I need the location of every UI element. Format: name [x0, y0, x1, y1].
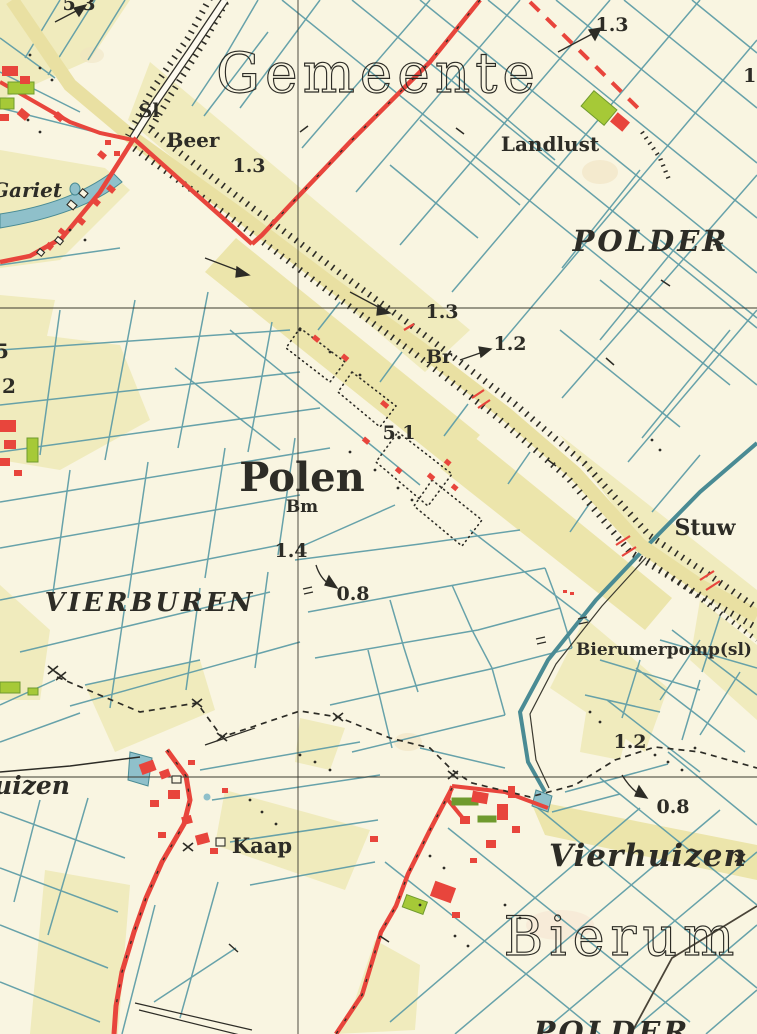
feature-weir-stuw: Stuw: [675, 515, 737, 541]
spot-height: 1.3: [425, 301, 458, 323]
feature-bierumerpomp: Bierumerpomp(sl): [576, 640, 752, 660]
feature-bridge-br: Br: [426, 346, 453, 368]
map-canvas: Gemeente Bierum POLDER POLDER VIERBUREN …: [0, 0, 757, 1034]
spot-height: 1.3: [232, 155, 265, 177]
area-label-vierburen: VIERBUREN: [45, 588, 256, 618]
settlement-kaap: Kaap: [232, 833, 292, 858]
municipality-name-gemeente: Gemeente: [216, 41, 540, 105]
feature-sluice-sl: Sl: [139, 100, 160, 122]
spot-height: 1.: [743, 65, 757, 87]
polen-bm-marker: Bm: [286, 497, 318, 517]
spot-height: 2: [2, 374, 16, 398]
spot-height: 1.2: [493, 333, 526, 355]
settlement-polen: Polen: [239, 454, 364, 501]
settlement-landlust: Landlust: [501, 132, 600, 156]
settlement-beer: Beer: [167, 128, 220, 152]
settlement-vierhuizen: Vierhuizen: [549, 838, 747, 874]
spot-height: 0.8: [656, 796, 689, 818]
area-label-polder-ne: POLDER: [572, 224, 730, 258]
pond-small: [204, 794, 211, 801]
area-label-polder-s: POLDER: [533, 1015, 691, 1034]
spot-height: 1.4: [274, 540, 307, 562]
settlement-uizen-partial: uizen: [0, 771, 70, 800]
spot-height: 5: [0, 339, 9, 363]
stream-label-gariet: Gariet: [0, 178, 63, 202]
spot-height: 0.8: [336, 583, 369, 605]
municipality-name-bierum: Bierum: [504, 905, 741, 968]
spot-height: 5.3: [62, 0, 95, 15]
spot-height: 5.1: [382, 422, 415, 444]
topographic-map: Gemeente Bierum POLDER POLDER VIERBUREN …: [0, 0, 757, 1034]
spot-height: 1.2: [613, 731, 646, 753]
spot-height: 1.3: [595, 14, 628, 36]
